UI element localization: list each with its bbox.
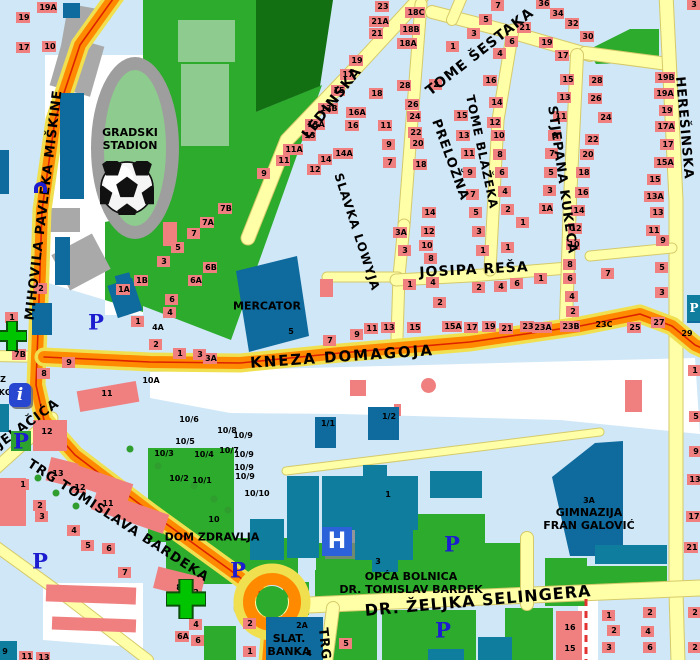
house-number: 15 (409, 324, 420, 332)
residential-building (625, 380, 642, 412)
house-number: 13B (320, 105, 337, 113)
place-label-line: MERCATOR (233, 299, 301, 312)
institution-building (428, 649, 464, 660)
house-number: 7B (220, 205, 232, 213)
house-number: 3 (402, 247, 408, 255)
house-number: 9 (693, 448, 699, 456)
house-number: 14 (573, 207, 584, 215)
institution-building (363, 465, 387, 478)
house-number: 4 (502, 188, 508, 196)
house-number: 25 (629, 324, 640, 332)
place-label-line: OPĆA BOLNICA (339, 570, 482, 583)
house-number: 2 (153, 341, 159, 349)
house-number: 9 (66, 359, 72, 367)
house-number: 1 (480, 247, 486, 255)
house-number: 12 (309, 166, 320, 174)
house-number: 12 (41, 428, 52, 436)
house-number: 2 (433, 81, 439, 89)
house-number: 17 (342, 71, 353, 79)
house-number: 10/9 (233, 432, 253, 440)
tree (225, 507, 232, 514)
house-number: 2 (437, 299, 443, 307)
place-label: GRADSKISTADION (102, 126, 158, 152)
house-number: 24 (600, 114, 611, 122)
house-number: 7A (202, 219, 214, 227)
parking-icon: P (444, 534, 460, 555)
house-number: 3 (547, 187, 553, 195)
tree (211, 496, 218, 503)
house-number: 1A (118, 286, 130, 294)
house-number: 21 (686, 544, 697, 552)
house-number: 1 (247, 648, 253, 656)
house-number: 3A (205, 355, 217, 363)
house-number: 3 (606, 644, 612, 652)
house-number: 2 (570, 308, 576, 316)
house-number: 12 (74, 484, 85, 492)
house-number: 12 (423, 228, 434, 236)
lawn (505, 608, 553, 660)
house-number: 1/2 (382, 413, 396, 421)
house-number: 7 (470, 191, 476, 199)
house-number: 23B (562, 323, 579, 331)
house-number: 5 (548, 169, 554, 177)
info-icon: i (9, 383, 31, 407)
house-number: 6 (499, 169, 505, 177)
house-number: 3 (161, 258, 167, 266)
house-number: 1 (606, 612, 612, 620)
house-number: 15 (649, 176, 660, 184)
place-label-line: STADION (102, 139, 158, 152)
house-number: 12 (489, 119, 500, 127)
house-number: 16 (485, 77, 496, 85)
house-number: 36 (538, 0, 549, 8)
house-number: 15 (564, 645, 575, 653)
place-label-line: DR. TOMISLAV BARDEK (339, 583, 482, 596)
house-number: 3 (197, 351, 203, 359)
house-number: 29 (681, 330, 692, 338)
grey-building (50, 208, 80, 232)
house-number: 13 (559, 94, 570, 102)
house-number: 11 (648, 227, 659, 235)
house-number: 10 (493, 132, 504, 140)
house-number: 2 (247, 620, 253, 628)
pharmacy-cross-icon (166, 579, 206, 619)
house-number: 4 (569, 293, 575, 301)
house-number: 20 (582, 151, 593, 159)
house-number: 6B (205, 264, 217, 272)
house-number: 19 (541, 39, 552, 47)
house-number: 4A (152, 324, 164, 332)
house-number: 18 (371, 90, 382, 98)
house-number: 12 (570, 225, 581, 233)
house-number: 7 (549, 150, 555, 158)
lawn (204, 626, 236, 660)
tree (127, 446, 134, 453)
house-number: 11 (102, 500, 113, 508)
house-number: 13 (652, 209, 663, 217)
house-number: 10/9 (234, 464, 254, 472)
house-number: 22 (410, 129, 421, 137)
house-number: 19 (351, 57, 362, 65)
parking-icon: P (230, 560, 246, 581)
lawn (181, 64, 229, 146)
house-number: 15 (456, 112, 467, 120)
house-number: 2 (37, 502, 43, 510)
house-number: 13A (307, 121, 324, 129)
parking-icon: P (13, 431, 29, 452)
house-number: 1 (177, 350, 183, 358)
house-number: 26 (407, 101, 418, 109)
house-number: 20 (412, 140, 423, 148)
residential-building (46, 584, 137, 604)
house-number: 6 (195, 637, 201, 645)
house-number: 13 (383, 324, 394, 332)
house-number: 10 (44, 43, 55, 51)
house-number: 5 (175, 244, 181, 252)
house-number: 10/9 (234, 451, 254, 459)
house-number: 23 (377, 3, 388, 11)
road-connector-east (590, 248, 672, 256)
street-label: TRG (316, 627, 332, 660)
house-number: 3 (691, 1, 697, 9)
public-building (0, 150, 9, 194)
house-number: 3 (471, 30, 477, 38)
house-number: 16 (577, 189, 588, 197)
house-number: 16A (348, 109, 365, 117)
house-number: 2 (611, 627, 617, 635)
parking-icon: P (689, 302, 698, 314)
house-number: 21 (501, 325, 512, 333)
institution-building (430, 471, 482, 498)
house-number: 3A (395, 229, 407, 237)
pharmacy-cross (0, 321, 27, 351)
house-number: 13 (304, 132, 315, 140)
house-number: 10/5 (175, 438, 195, 446)
residential-building (421, 378, 436, 393)
house-number: 15 (562, 76, 573, 84)
place-label-line: GRADSKI (102, 126, 158, 139)
house-number: 7 (191, 230, 197, 238)
house-number: 11 (21, 653, 32, 660)
house-number: 11 (380, 122, 391, 130)
place-label-line: BANKA (267, 645, 310, 658)
house-number: 19B (657, 74, 674, 82)
hospital-icon: H (322, 527, 352, 556)
institution-building (595, 545, 667, 564)
house-number: 28 (591, 77, 602, 85)
house-number: 2 (692, 609, 698, 617)
house-number: 7 (387, 159, 393, 167)
house-number: 7 (605, 270, 611, 278)
house-number: 9 (2, 648, 8, 656)
house-number: Z (0, 376, 6, 384)
house-number: 11 (278, 157, 289, 165)
public-building (55, 237, 70, 285)
house-number: 15A (656, 159, 673, 167)
house-number: 4 (497, 50, 503, 58)
residential-building (350, 380, 366, 396)
place-label: MERCATOR (233, 299, 301, 312)
house-number: 6 (514, 280, 520, 288)
house-number: 3 (659, 289, 665, 297)
house-number: 18 (415, 161, 426, 169)
house-number: 14 (320, 156, 331, 164)
house-number: 13A (646, 193, 663, 201)
house-number: 21A (371, 18, 388, 26)
house-number: 19 (484, 323, 495, 331)
house-number: 21 (519, 24, 530, 32)
house-number: 27 (653, 319, 664, 327)
house-number: 19 (661, 107, 672, 115)
house-number: 10 (421, 242, 432, 250)
house-number: 10/2 (169, 475, 189, 483)
institution-building (322, 476, 418, 530)
place-label: OPĆA BOLNICADR. TOMISLAV BARDEK (339, 570, 482, 596)
house-number: 17 (466, 324, 477, 332)
house-number: 2A (296, 622, 308, 630)
house-number: 4 (71, 527, 77, 535)
house-number: 9 (552, 132, 558, 140)
roundabout-island (256, 586, 288, 618)
house-number: 10 (208, 516, 219, 524)
house-number: 11 (366, 325, 377, 333)
house-number: 17 (662, 141, 673, 149)
house-number: 10/10 (244, 490, 269, 498)
house-number: 23C (595, 321, 612, 329)
house-number: 8 (428, 255, 434, 263)
parking-icon: P (32, 551, 48, 572)
house-number: 28 (399, 82, 410, 90)
house-number: 4 (193, 621, 199, 629)
place-label: SLAT.BANKA (267, 632, 310, 658)
house-number: 6 (169, 296, 175, 304)
house-number: 9 (261, 170, 267, 178)
house-number: 7 (495, 2, 501, 10)
house-number: 19A (39, 4, 56, 12)
house-number: 10/6 (179, 416, 199, 424)
house-number: 1 (520, 219, 526, 227)
house-number: 1 (385, 491, 391, 499)
house-number: 10/4 (194, 451, 214, 459)
house-number: 7 (327, 337, 333, 345)
place-label-line: SLAT. (267, 632, 310, 645)
house-number: 11 (101, 390, 112, 398)
house-number: 4 (306, 650, 312, 658)
house-number: 11A (285, 146, 302, 154)
house-number: 26 (590, 95, 601, 103)
house-number: 10/9 (235, 473, 255, 481)
house-number: 4 (430, 279, 436, 287)
place-label-line: FRAN GALOVIĆ (543, 519, 634, 532)
place-label-line: GIMNAZIJA (543, 506, 634, 519)
house-number: 3 (39, 513, 45, 521)
house-number: 16 (347, 122, 358, 130)
house-number: 10 (568, 241, 579, 249)
house-number: 13 (458, 132, 469, 140)
house-number: 3 (375, 558, 381, 566)
house-number: 8 (497, 151, 503, 159)
house-number: 4 (498, 283, 504, 291)
house-number: 2 (692, 644, 698, 652)
house-number: 11 (555, 113, 566, 121)
house-number: 1 (407, 281, 413, 289)
house-number: 1A (541, 205, 553, 213)
house-number: 18 (578, 169, 589, 177)
city-map-canvas[interactable]: 19A1917107B7A7531B1A6B6A644A2133A121987B… (0, 0, 700, 660)
house-number: 8 (41, 370, 47, 378)
house-number: 17A (657, 123, 674, 131)
pharmacy-cross (166, 579, 206, 619)
house-number: 18A (399, 40, 416, 48)
house-number: 7 (122, 569, 128, 577)
house-number: 9 (386, 141, 392, 149)
house-number: 13 (52, 470, 63, 478)
house-number: 8 (567, 261, 573, 269)
house-number: 2 (505, 206, 511, 214)
house-number: 7B (14, 351, 26, 359)
public-building (60, 93, 84, 199)
house-number: 5 (483, 16, 489, 24)
house-number: 9 (354, 331, 360, 339)
house-number: 13 (38, 654, 49, 660)
street-label: DOM ZDRAVLJA (165, 532, 260, 543)
house-number: 13 (689, 476, 700, 484)
house-number: 4 (645, 628, 651, 636)
house-number: 19A (656, 90, 673, 98)
house-number: 32 (567, 20, 578, 28)
house-number: 17 (18, 44, 29, 52)
pharmacy-cross-icon (0, 321, 27, 351)
house-number: 1 (135, 318, 141, 326)
road-heresinska-south (676, 592, 678, 660)
public-building (63, 3, 80, 18)
house-number: 5 (85, 542, 91, 550)
house-number: 21 (371, 30, 382, 38)
house-number: 5 (659, 264, 665, 272)
residential-building (320, 279, 333, 297)
house-number: 19 (18, 14, 29, 22)
house-number: 5 (343, 640, 349, 648)
house-number: 10/3 (154, 450, 174, 458)
tree (155, 463, 162, 470)
house-number: 34 (552, 10, 563, 18)
house-number: 5 (693, 413, 699, 421)
lawn (178, 20, 235, 62)
house-number: 6A (190, 277, 202, 285)
house-number: 1B (136, 277, 148, 285)
house-number: 1 (20, 481, 26, 489)
house-number: 18C (407, 9, 424, 17)
house-number: 2 (38, 285, 44, 293)
house-number: 14 (491, 99, 502, 107)
house-number: 4 (167, 309, 173, 317)
house-number: 10/1 (192, 477, 212, 485)
house-number: 5 (473, 209, 479, 217)
house-number: 5 (288, 328, 294, 336)
house-number: 11 (463, 150, 474, 158)
house-number: 1 (450, 43, 456, 51)
house-number: 6 (106, 545, 112, 553)
house-number: 23 (522, 323, 533, 331)
house-number: 23A (534, 324, 551, 332)
parking-icon: P (88, 312, 104, 333)
house-number: 6 (647, 644, 653, 652)
house-number: 6 (509, 38, 515, 46)
house-number: 2 (476, 284, 482, 292)
house-number: 1 (538, 275, 544, 283)
transit-arch-icon (34, 182, 47, 193)
house-number: 1/1 (321, 420, 335, 428)
house-number: 18B (402, 26, 419, 34)
place-label: GIMNAZIJAFRAN GALOVIĆ (543, 506, 634, 532)
house-number: 6A (177, 633, 189, 641)
house-number: 14A (335, 150, 352, 158)
house-number: 14 (424, 209, 435, 217)
house-number: 10A (142, 377, 159, 385)
house-number: 17 (557, 52, 568, 60)
house-number: 3 (476, 228, 482, 236)
parking-icon: P (435, 620, 451, 641)
house-number: 9 (660, 237, 666, 245)
institution-building (287, 476, 319, 558)
house-number: 22 (587, 136, 598, 144)
house-number: 15A (444, 323, 461, 331)
house-number: 9 (467, 169, 473, 177)
house-number: 6 (567, 275, 573, 283)
house-number: 2 (647, 609, 653, 617)
house-number: 3A (583, 497, 595, 505)
house-number: 1 (505, 244, 511, 252)
house-number: 17 (688, 513, 699, 521)
house-number: 15 (333, 87, 344, 95)
institution-building (478, 637, 512, 660)
house-number: 1 (692, 367, 698, 375)
house-number: 30 (582, 33, 593, 41)
house-number: 16 (564, 624, 575, 632)
house-number: 24 (409, 113, 420, 121)
soccer-ball-icon (100, 161, 154, 215)
